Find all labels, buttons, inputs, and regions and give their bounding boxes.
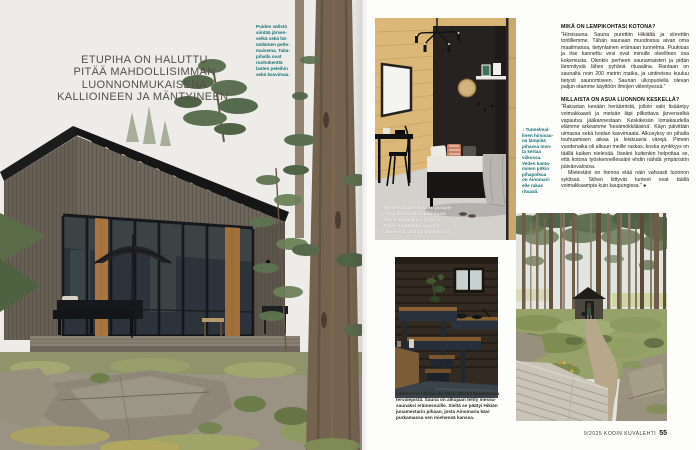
answer-1: ”Hirsisauna. Sauna purettiin Hikiältä ja…: [561, 32, 689, 91]
sauna-pointer-caption: ↓ Tunnelmal- linen hirsisau- na lämpiää …: [522, 127, 566, 194]
question-1: MIKÄ ON LEMPIKOHTASI KOTONA?: [561, 24, 689, 30]
answer-2-continued: Mielestäni on hienoa elää näin vahvasti …: [561, 170, 689, 190]
sauna-photo-caption: Lauteet on nikkaroitu talon läheltä kaad…: [396, 391, 500, 421]
interior-photo-caption: Tyttöjen huoneessa on puupin- nat ja kon…: [383, 205, 493, 235]
page-number: 55: [659, 430, 667, 437]
page-footer: 9/2025 KODIN KUVALEHTI 55: [584, 430, 667, 437]
issue-label: 9/2025 KODIN KUVALEHTI: [584, 431, 656, 437]
left-photo-caption: Puiden välistä siintää järven- selkä sek…: [256, 24, 308, 78]
sauna-illustration: [395, 257, 498, 398]
interior-bedroom-photo: Tyttöjen huoneessa on puupin- nat ja kon…: [375, 18, 516, 240]
right-page: Tyttöjen huoneessa on puupin- nat ja kon…: [362, 0, 696, 450]
question-2: MILLAISTA ON ASUA LUONNON KESKELLÄ?: [561, 97, 689, 103]
magazine-spread: ETUPIHA ON HALUTTU PITÄÄ MAHDOLLISIMMAN …: [0, 0, 696, 450]
left-page: ETUPIHA ON HALUTTU PITÄÄ MAHDOLLISIMMAN …: [0, 0, 362, 450]
forest-illustration: [516, 213, 667, 421]
forest-path-photo: [516, 213, 667, 421]
answer-2: ”Rakastan kevään heräämistä, jolloin val…: [561, 104, 689, 170]
page-headline: ETUPIHA ON HALUTTU PITÄÄ MAHDOLLISIMMAN …: [34, 54, 255, 104]
sauna-interior-photo: [395, 257, 498, 398]
article-text-column: MIKÄ ON LEMPIKOHTASI KOTONA? ”Hirsisauna…: [561, 24, 689, 190]
